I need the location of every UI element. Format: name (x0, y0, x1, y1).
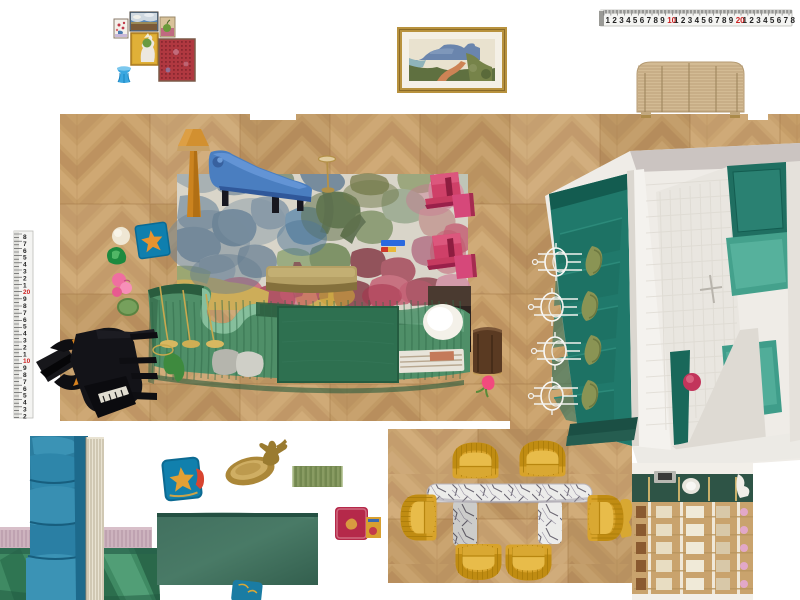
svg-text:7: 7 (784, 16, 789, 25)
svg-text:8: 8 (654, 16, 659, 25)
svg-text:7: 7 (715, 16, 720, 25)
svg-text:5: 5 (633, 16, 638, 25)
svg-text:8: 8 (722, 16, 727, 25)
svg-text:9: 9 (729, 16, 734, 25)
svg-text:3: 3 (619, 16, 624, 25)
svg-text:2: 2 (23, 413, 27, 420)
svg-text:6: 6 (708, 16, 713, 25)
svg-text:5: 5 (770, 16, 775, 25)
svg-text:2: 2 (612, 16, 617, 25)
svg-text:2: 2 (749, 16, 754, 25)
svg-text:1: 1 (606, 16, 611, 25)
svg-text:5: 5 (701, 16, 706, 25)
svg-text:7: 7 (647, 16, 652, 25)
svg-text:1: 1 (674, 16, 679, 25)
svg-text:3: 3 (688, 16, 693, 25)
svg-text:6: 6 (640, 16, 645, 25)
svg-text:3: 3 (756, 16, 761, 25)
svg-text:2: 2 (681, 16, 686, 25)
svg-text:9: 9 (660, 16, 665, 25)
svg-text:1: 1 (743, 16, 748, 25)
svg-text:4: 4 (763, 16, 768, 25)
svg-text:8: 8 (791, 16, 796, 25)
svg-text:4: 4 (626, 16, 631, 25)
svg-text:4: 4 (695, 16, 700, 25)
svg-text:6: 6 (777, 16, 782, 25)
